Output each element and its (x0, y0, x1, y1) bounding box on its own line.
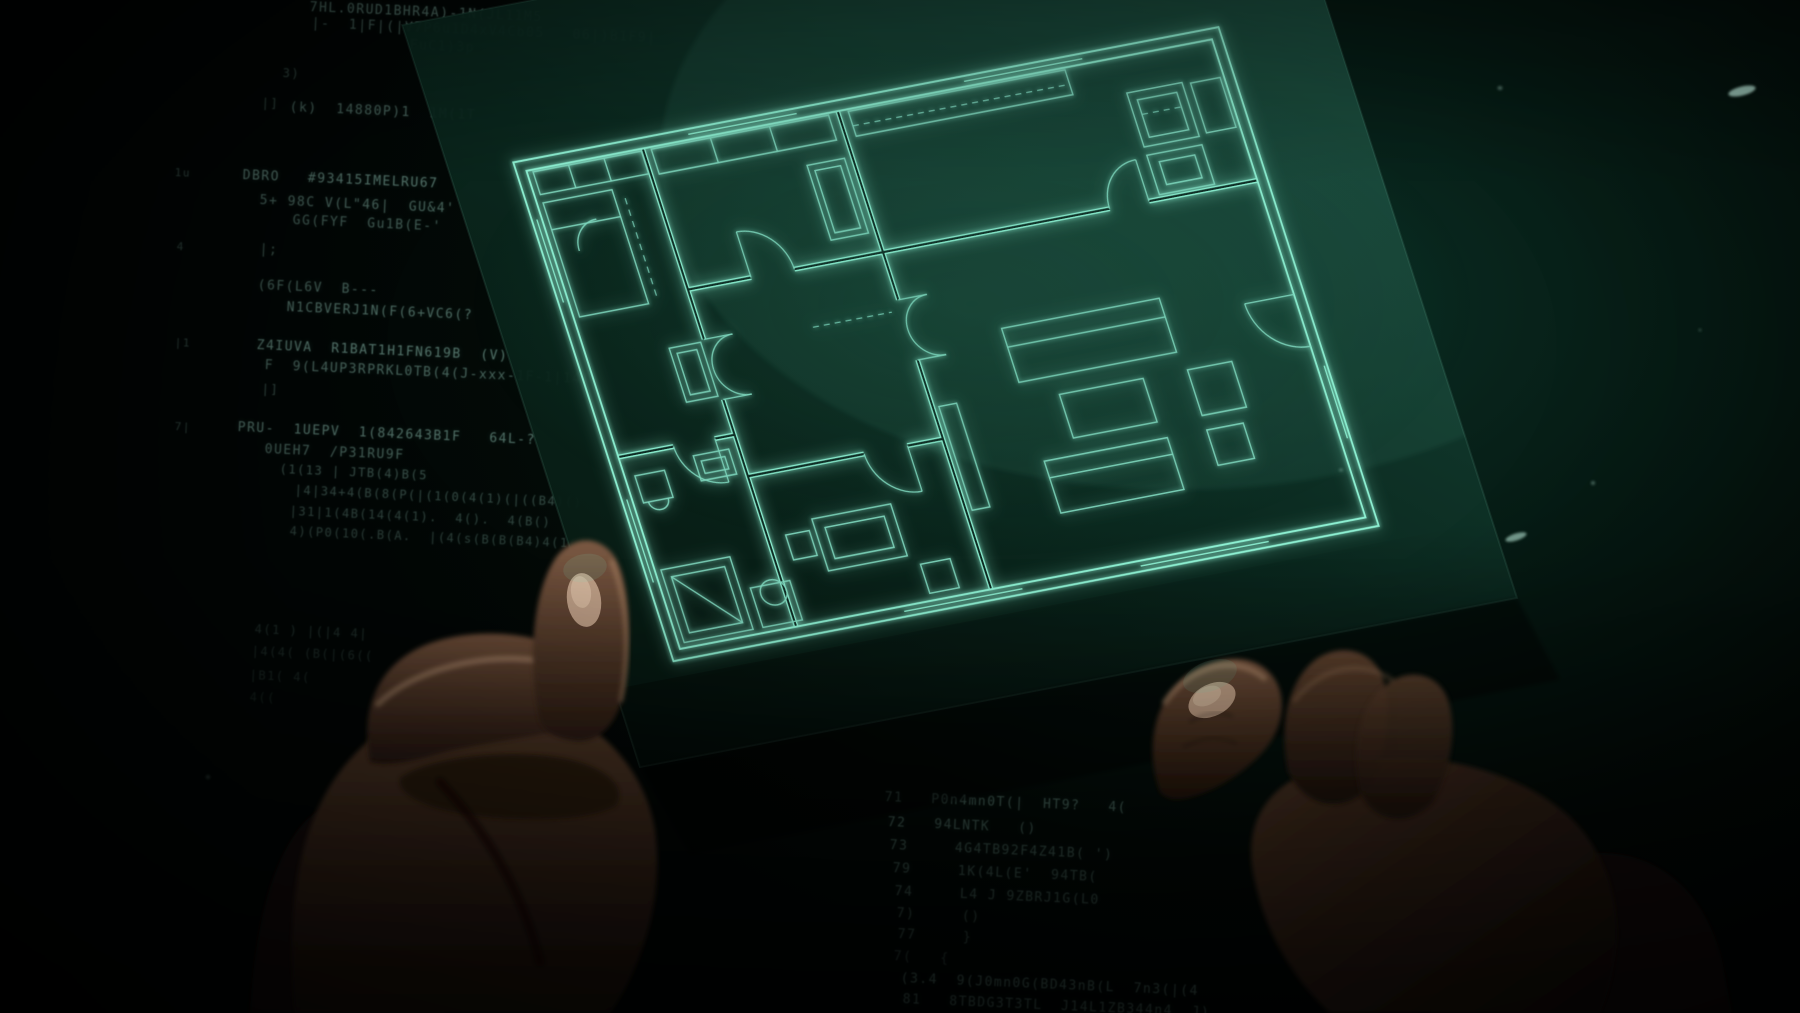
dust-speck (1339, 469, 1343, 472)
scene-svg (0, 0, 1800, 1013)
dust-speck (1699, 329, 1702, 332)
dust-speck (1727, 83, 1756, 99)
right-hand (1153, 650, 1732, 1013)
dust-speck (1504, 530, 1527, 543)
dust-speck (1498, 86, 1503, 90)
scene-stage: 7HL.0RUD1BHR4A)-1N(JL11M5|- 1|F|(|V7P6u1… (0, 0, 1800, 1013)
dust-speck (1591, 481, 1595, 485)
dust-speck (206, 775, 210, 779)
left-hand (250, 540, 657, 1013)
